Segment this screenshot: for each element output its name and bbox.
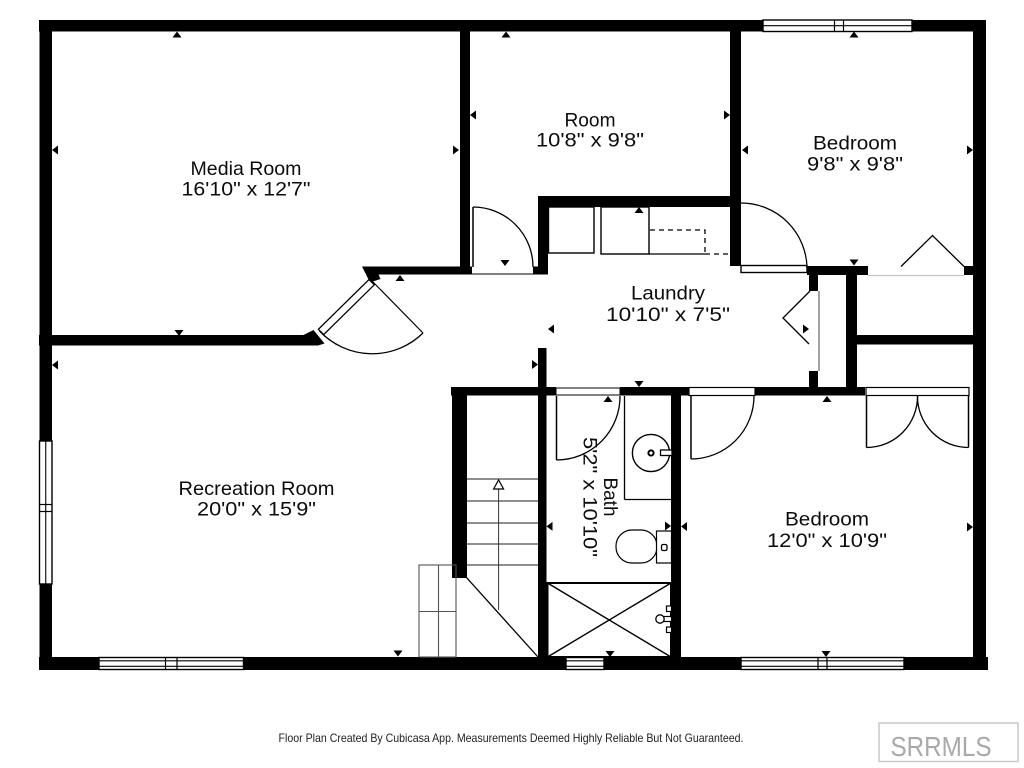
svg-text:10'10" x 7'5": 10'10" x 7'5" bbox=[606, 304, 730, 326]
svg-text:Bedroom: Bedroom bbox=[785, 509, 869, 531]
svg-text:Laundry: Laundry bbox=[631, 283, 705, 305]
svg-text:Room: Room bbox=[565, 110, 616, 132]
svg-text:5'2" x 10'10": 5'2" x 10'10" bbox=[579, 437, 601, 557]
svg-text:16'10" x 12'7": 16'10" x 12'7" bbox=[182, 179, 311, 201]
svg-text:Floor Plan Created By Cubicasa: Floor Plan Created By Cubicasa App. Meas… bbox=[279, 731, 744, 745]
svg-text:20'0" x 15'9": 20'0" x 15'9" bbox=[197, 499, 316, 521]
svg-text:Media Room: Media Room bbox=[191, 158, 302, 180]
svg-text:Recreation Room: Recreation Room bbox=[179, 478, 335, 500]
svg-text:SRRMLS: SRRMLS bbox=[891, 731, 992, 762]
svg-text:Bath: Bath bbox=[599, 478, 621, 517]
svg-text:10'8" x 9'8": 10'8" x 9'8" bbox=[536, 130, 644, 152]
svg-text:12'0" x 10'9": 12'0" x 10'9" bbox=[767, 530, 887, 552]
svg-text:Bedroom: Bedroom bbox=[813, 133, 897, 155]
svg-text:9'8" x 9'8": 9'8" x 9'8" bbox=[807, 154, 903, 176]
